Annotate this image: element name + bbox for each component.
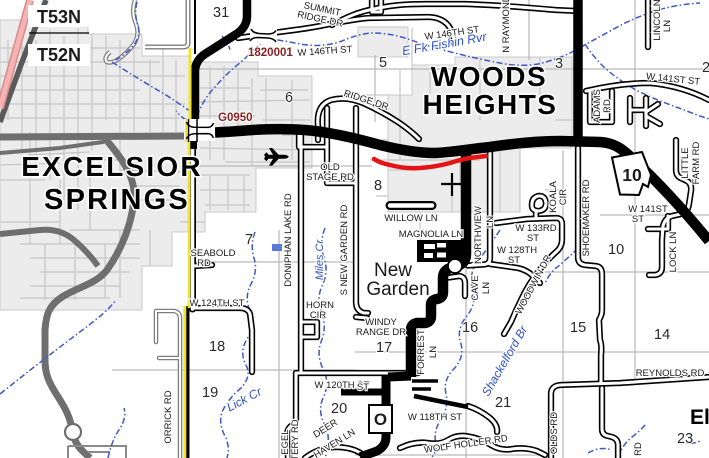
svg-text:W 124TH ST: W 124TH ST (190, 298, 245, 309)
svg-text:1820001: 1820001 (248, 47, 293, 59)
svg-text:CIR: CIR (558, 189, 569, 206)
svg-text:RD: RD (197, 258, 211, 269)
svg-text:19: 19 (202, 385, 218, 401)
svg-text:Miles Cr: Miles Cr (314, 239, 326, 281)
svg-text:NORTHVIEW: NORTHVIEW (473, 206, 484, 264)
svg-text:20: 20 (331, 401, 347, 417)
svg-text:RANGE DR: RANGE DR (356, 327, 406, 338)
svg-text:10: 10 (608, 242, 624, 258)
svg-text:MAGNOLIA LN: MAGNOLIA LN (399, 229, 464, 240)
svg-text:5: 5 (379, 55, 387, 71)
svg-text:LN: LN (428, 346, 439, 358)
svg-text:El: El (690, 406, 709, 429)
svg-text:14: 14 (654, 327, 670, 343)
svg-text:T53N: T53N (37, 7, 81, 27)
svg-text:LOCK LN: LOCK LN (668, 232, 679, 273)
svg-text:SHOEMAKER RD: SHOEMAKER RD (581, 179, 592, 256)
svg-text:18: 18 (209, 339, 225, 355)
svg-text:TERY RD: TERY RD (290, 419, 301, 458)
svg-text:31: 31 (213, 5, 229, 21)
svg-text:17: 17 (376, 340, 392, 356)
svg-text:3: 3 (555, 56, 563, 72)
svg-text:ORRICK RD: ORRICK RD (163, 390, 174, 443)
svg-text:S NEW GARDEN RD: S NEW GARDEN RD (339, 204, 350, 295)
svg-text:STAGE RD: STAGE RD (306, 172, 354, 183)
svg-text:ST: ST (632, 214, 644, 225)
svg-text:15: 15 (570, 320, 586, 336)
svg-text:OLDS RD: OLDS RD (549, 412, 560, 454)
svg-text:ST: ST (508, 255, 520, 266)
svg-text:DONIPHAN LAKE RD: DONIPHAN LAKE RD (283, 193, 294, 287)
svg-text:6: 6 (285, 90, 293, 106)
svg-text:HEIGHTS: HEIGHTS (423, 89, 558, 120)
svg-text:10: 10 (622, 165, 642, 185)
svg-text:REYNOLDS RD: REYNOLDS RD (636, 368, 705, 379)
svg-text:LN: LN (662, 20, 673, 32)
svg-text:FORREST: FORREST (416, 329, 427, 375)
svg-text:G0950: G0950 (218, 112, 253, 124)
svg-text:T52N: T52N (37, 45, 81, 65)
svg-text:LN: LN (485, 216, 496, 228)
svg-text:2: 2 (702, 60, 709, 76)
svg-text:N RAYMOND: N RAYMOND (501, 0, 512, 53)
svg-text:WOODS: WOODS (431, 61, 547, 92)
svg-text:8: 8 (374, 178, 382, 194)
svg-text:CIR: CIR (310, 310, 327, 321)
svg-text:New: New (374, 260, 412, 281)
svg-text:Garden: Garden (366, 279, 429, 300)
svg-text:FARM RD: FARM RD (691, 141, 702, 184)
svg-text:W 118TH ST: W 118TH ST (408, 412, 462, 423)
svg-text:16: 16 (462, 320, 478, 336)
svg-text:EXCELSIOR: EXCELSIOR (21, 151, 203, 182)
svg-text:RD: RD (602, 99, 613, 113)
svg-text:SPRINGS: SPRINGS (44, 184, 190, 216)
svg-text:O: O (374, 410, 387, 429)
svg-text:RD: RD (633, 442, 644, 456)
svg-text:21: 21 (495, 395, 511, 411)
svg-text:ST: ST (527, 233, 539, 244)
svg-text:WILLOW LN: WILLOW LN (384, 213, 437, 224)
svg-text:23: 23 (677, 431, 693, 447)
svg-text:CAVE: CAVE (470, 275, 481, 300)
svg-text:7: 7 (245, 232, 253, 248)
svg-text:LITTLE: LITTLE (680, 147, 691, 178)
svg-text:LN: LN (481, 282, 492, 294)
svg-text:ST: ST (357, 382, 369, 393)
